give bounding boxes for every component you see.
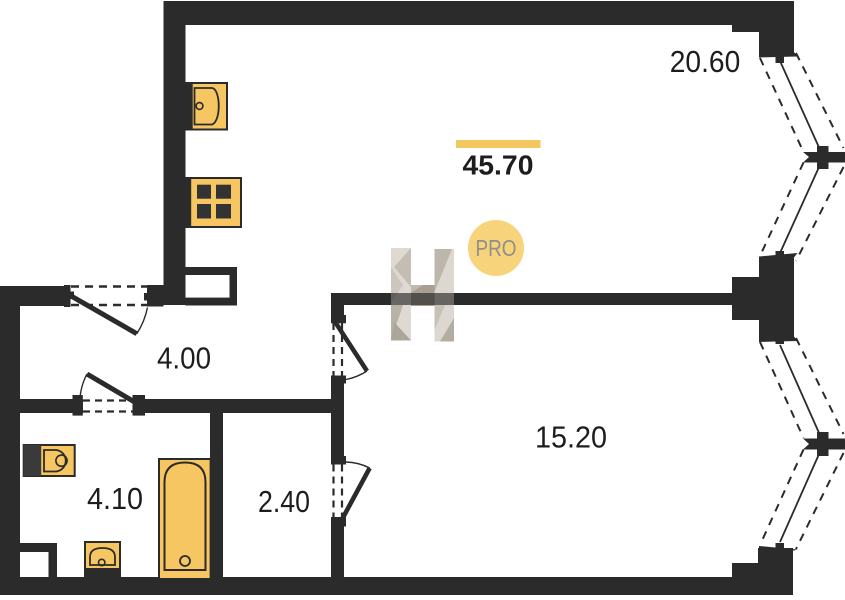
svg-text:15.20: 15.20 (535, 420, 607, 455)
svg-text:4.00: 4.00 (157, 341, 211, 376)
svg-text:20.60: 20.60 (670, 44, 741, 79)
svg-text:45.70: 45.70 (463, 150, 534, 181)
svg-text:PRO: PRO (476, 235, 517, 261)
svg-text:2.40: 2.40 (258, 484, 310, 519)
svg-text:4.10: 4.10 (87, 481, 143, 516)
